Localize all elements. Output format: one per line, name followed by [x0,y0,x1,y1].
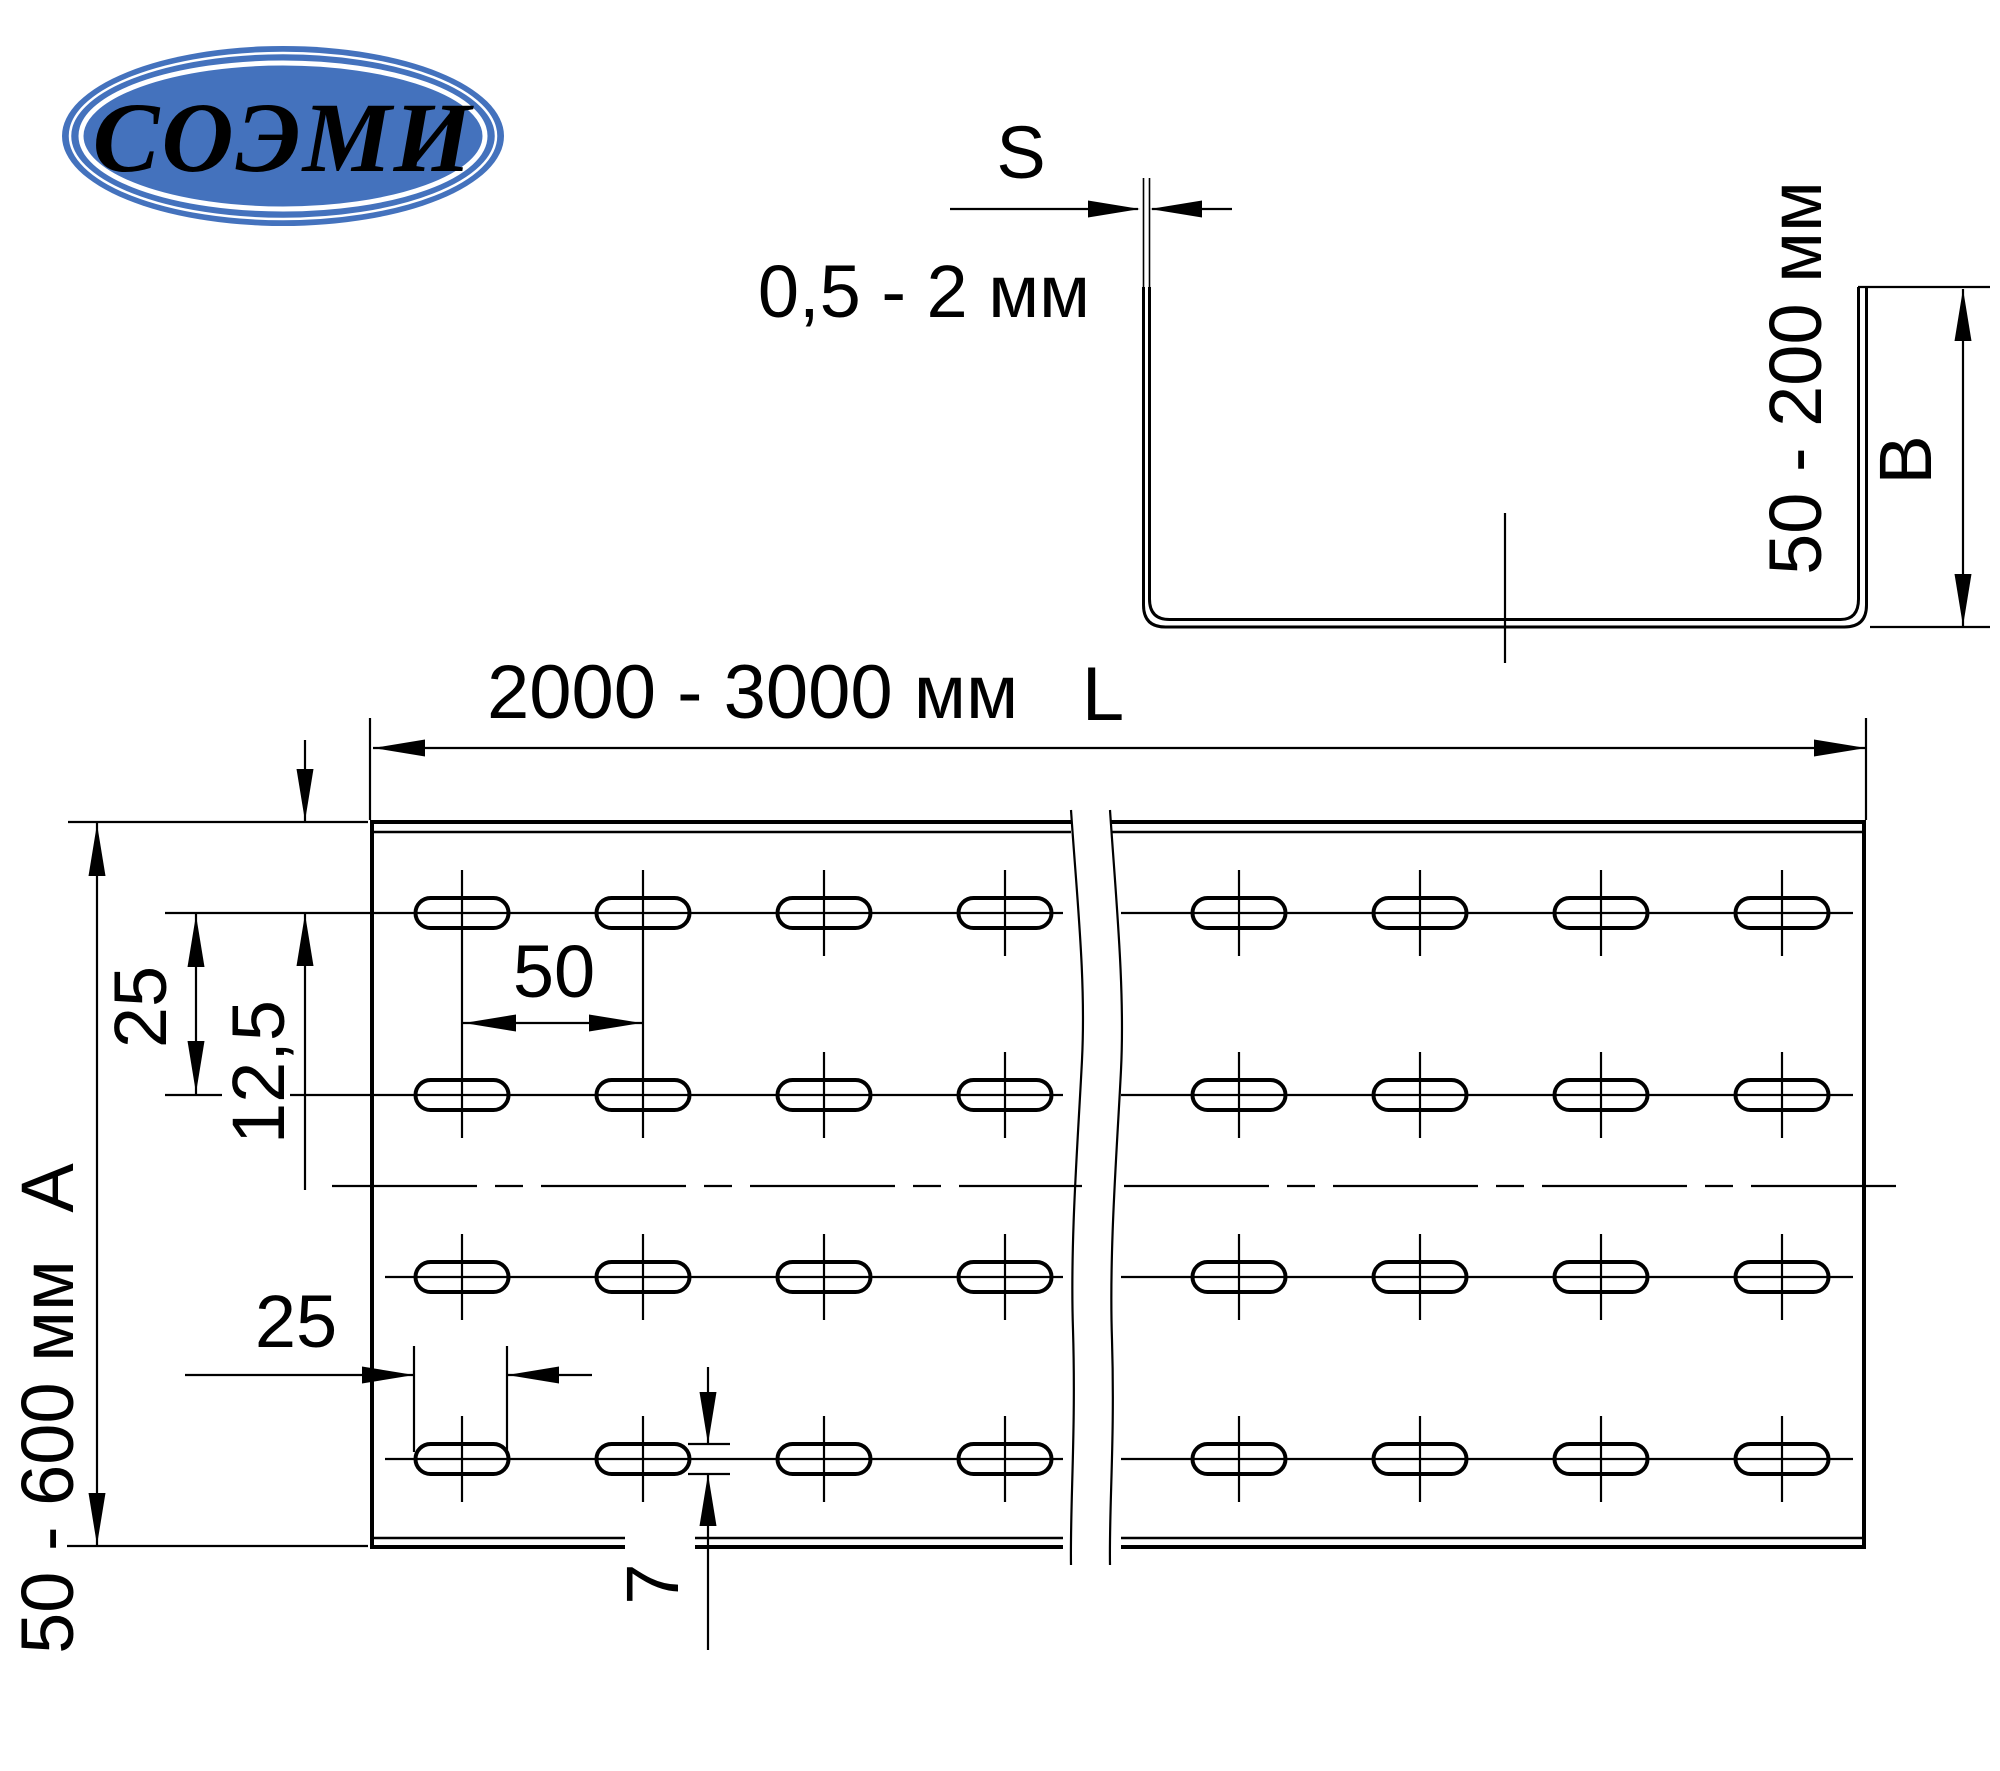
arrowhead [589,1015,641,1032]
edge-offset-dimension: 12,5 [217,740,314,1190]
row-spacing-dimension: 25 [99,914,205,1094]
break-line-left [1071,810,1083,1565]
arrowhead [1088,201,1140,218]
height-label: B [1864,435,1947,484]
hole-width-dimension: 7 [611,1367,730,1650]
thickness-value: 0,5 - 2 мм [758,250,1090,333]
arrowhead [700,1474,717,1526]
arrowhead [1814,740,1866,757]
arrowhead [297,914,314,966]
arrowhead [1955,289,1972,341]
width-value-and-label: 50 - 600 мм [6,1260,89,1654]
arrowhead [297,769,314,821]
hole-length-value: 25 [255,1280,337,1363]
width-label: А [6,1163,89,1213]
arrowhead [700,1392,717,1444]
technical-drawing-page: СОЭМИ S 0,5 - 2 мм 50 - 200 мм B [0,0,2000,1771]
thickness-label: S [996,111,1045,194]
arrowhead [1955,574,1972,626]
arrowhead [188,915,205,967]
hole-pitch-dimension: 50 [463,930,642,1032]
length-dimension: 2000 - 3000 мм L [370,650,1866,820]
arrowhead [89,1493,106,1545]
width-dimension: 50 - 600 мм А [6,822,368,1654]
arrowhead [89,824,106,876]
cable-tray-drawing: СОЭМИ S 0,5 - 2 мм 50 - 200 мм B [0,0,2000,1771]
arrowhead [373,740,425,757]
break-line-right [1110,810,1122,1565]
company-logo: СОЭМИ [62,46,504,226]
arrowhead [188,1041,205,1093]
arrowhead [1150,201,1202,218]
thickness-dimension: S 0,5 - 2 мм [758,111,1232,333]
height-value: 50 - 200 мм [1754,181,1837,575]
arrowhead [362,1367,414,1384]
hole-width-value: 7 [611,1563,694,1604]
plan-view: 2000 - 3000 мм L [6,650,1905,1654]
arrowhead [464,1015,516,1032]
edge-offset-value: 12,5 [217,1000,300,1144]
length-label: L [1082,652,1124,737]
row-spacing-value: 25 [99,966,182,1048]
logo-text: СОЭМИ [93,82,475,193]
arrowhead [507,1367,559,1384]
hole-pitch-value: 50 [513,930,595,1013]
break-lines [1071,810,1122,1565]
length-value: 2000 - 3000 мм [487,650,1018,735]
hole-length-dimension: 25 [185,1280,592,1452]
profile-view: S 0,5 - 2 мм 50 - 200 мм B [758,111,1990,663]
height-dimension: 50 - 200 мм B [1754,181,1990,627]
